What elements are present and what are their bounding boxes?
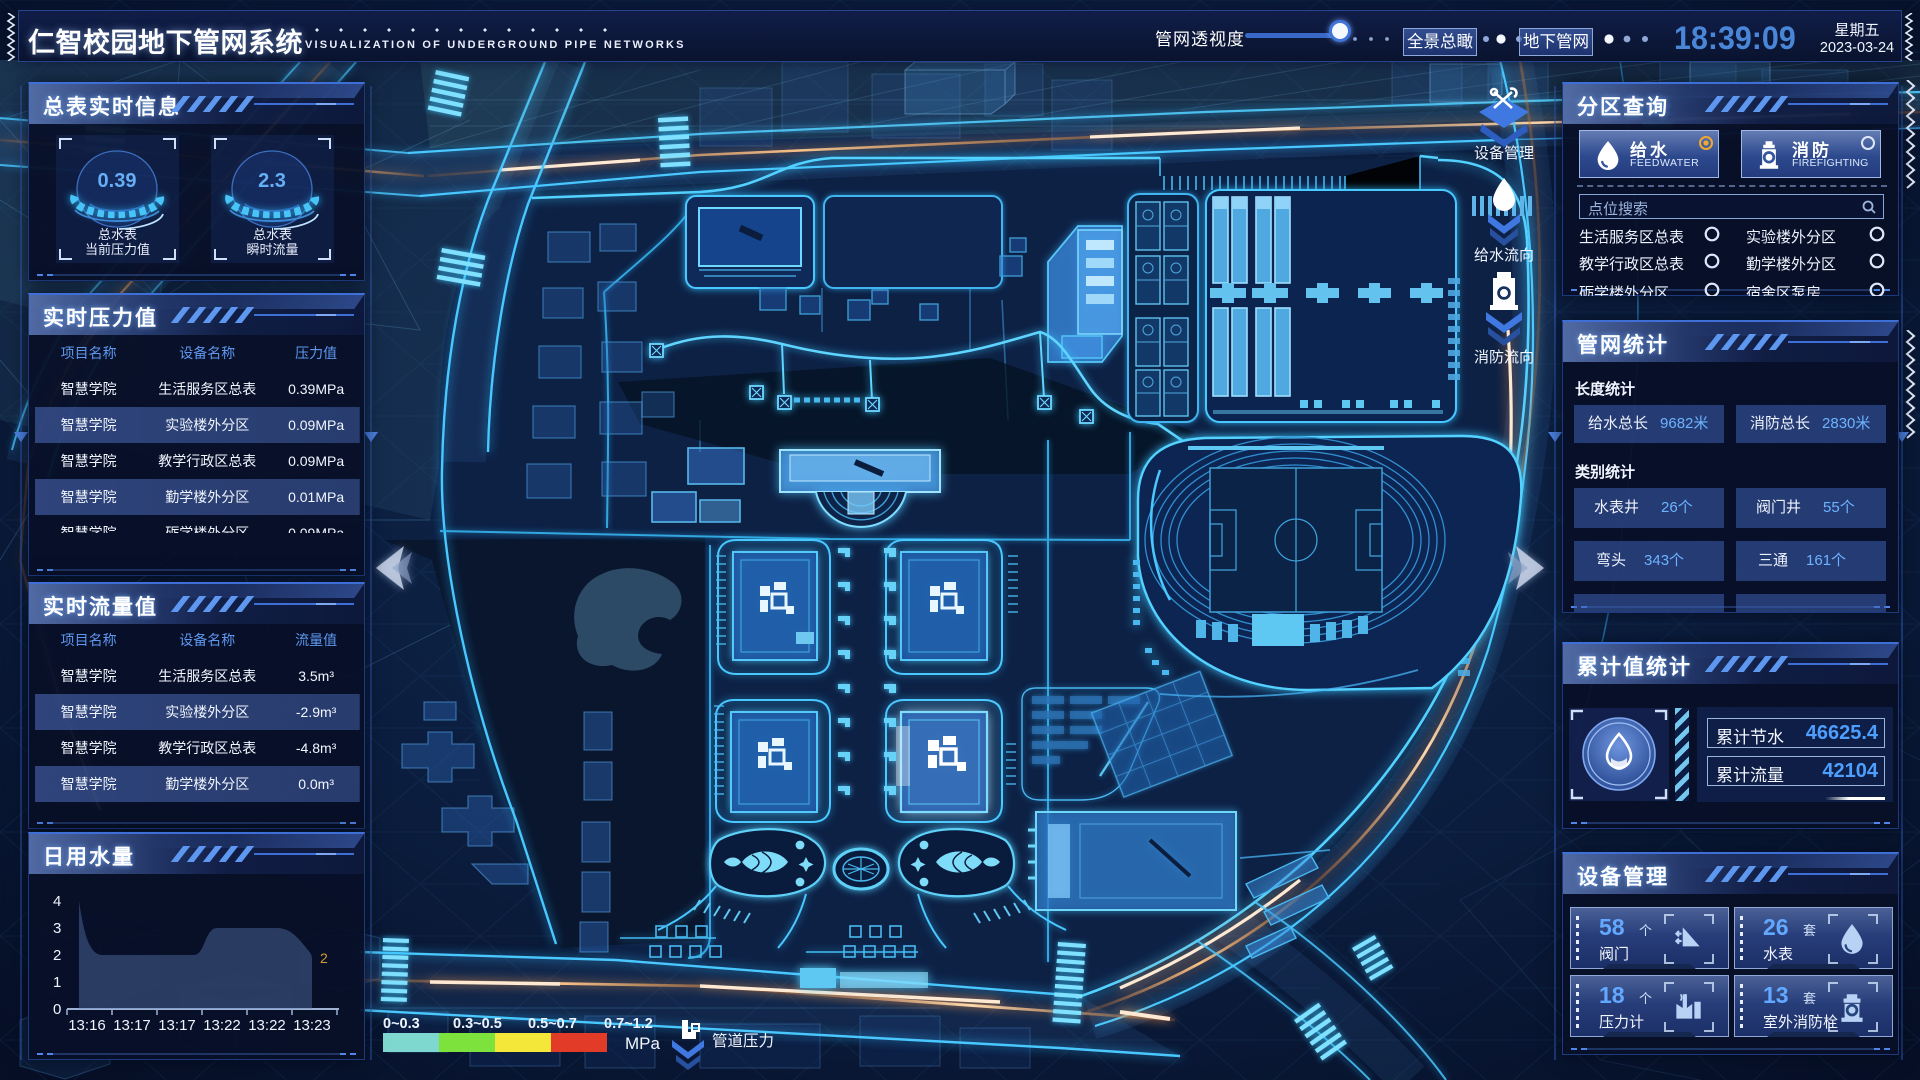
svg-text:0.5~0.7: 0.5~0.7 [528, 1016, 577, 1032]
svg-text:给水流向: 给水流向 [1474, 247, 1534, 264]
svg-text:2: 2 [320, 950, 328, 966]
svg-text:2.3: 2.3 [258, 170, 286, 192]
svg-text:设备管理: 设备管理 [1474, 145, 1534, 162]
svg-text:1: 1 [53, 974, 61, 991]
svg-text:3: 3 [53, 920, 61, 937]
svg-text:MPa: MPa [625, 1034, 661, 1053]
svg-text:消防流向: 消防流向 [1474, 349, 1534, 366]
svg-text:管道压力: 管道压力 [712, 1032, 774, 1050]
svg-text:0: 0 [53, 1001, 61, 1018]
svg-text:13:23: 13:23 [293, 1017, 331, 1034]
svg-text:0.3~0.5: 0.3~0.5 [453, 1016, 502, 1032]
svg-text:13:16: 13:16 [68, 1017, 106, 1034]
svg-text:13:17: 13:17 [113, 1017, 151, 1034]
svg-text:0.7~1.2: 0.7~1.2 [604, 1016, 653, 1032]
svg-text:0~0.3: 0~0.3 [383, 1016, 420, 1032]
svg-text:13:17: 13:17 [158, 1017, 196, 1034]
svg-text:4: 4 [53, 893, 61, 910]
svg-text:2: 2 [53, 947, 61, 964]
svg-text:13:22: 13:22 [203, 1017, 241, 1034]
svg-text:0.39: 0.39 [98, 170, 137, 192]
svg-text:13:22: 13:22 [248, 1017, 286, 1034]
